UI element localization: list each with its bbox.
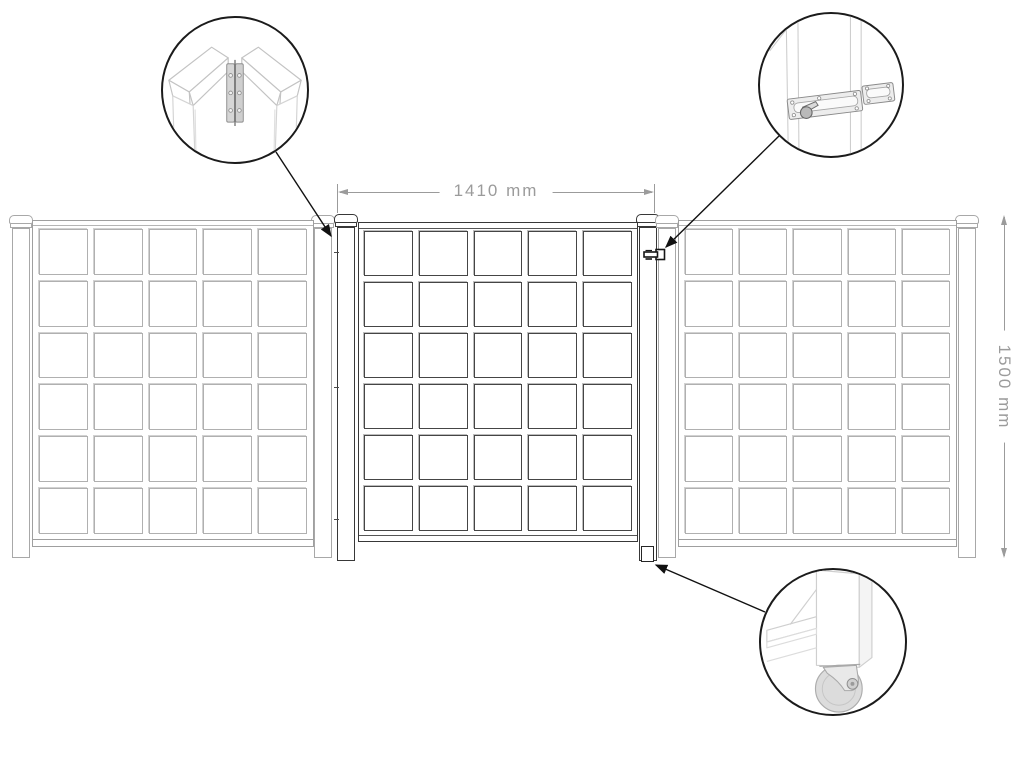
grid-opening: [902, 436, 950, 482]
grid-opening: [685, 384, 733, 430]
grid-opening: [793, 384, 841, 430]
grid-opening: [419, 435, 468, 480]
grid-opening: [474, 384, 523, 429]
caster-detail-callout: [759, 568, 907, 716]
grid-opening: [739, 229, 787, 275]
grid-opening: [474, 333, 523, 378]
grid-opening: [583, 435, 632, 480]
grid-opening: [258, 281, 307, 327]
grid-opening: [848, 333, 896, 379]
gate-panel: [358, 222, 638, 542]
grid-opening: [203, 229, 252, 275]
assembly-diagram: 1410 mm 1500 mm: [0, 0, 1024, 768]
grid-opening: [419, 282, 468, 327]
grid-opening: [583, 231, 632, 276]
grid-opening: [474, 282, 523, 327]
grid-opening: [149, 436, 198, 482]
grid-opening: [739, 488, 787, 534]
grid-opening: [364, 486, 413, 531]
grid-opening: [583, 486, 632, 531]
grid-opening: [419, 333, 468, 378]
grid-opening: [39, 436, 88, 482]
hinge-icon: [163, 18, 307, 162]
grid-opening: [94, 384, 143, 430]
grid-opening: [848, 384, 896, 430]
grid-opening: [39, 384, 88, 430]
grid-opening: [902, 333, 950, 379]
grid-opening: [203, 333, 252, 379]
grid-opening: [685, 333, 733, 379]
post-shaft: [658, 228, 676, 558]
right-fence-grid: [685, 229, 950, 534]
grid-opening: [739, 436, 787, 482]
grid-opening: [39, 488, 88, 534]
grid-opening: [149, 281, 198, 327]
caster-mount-stub: [641, 546, 654, 562]
grid-opening: [149, 384, 198, 430]
dimension-arrow-down: [1001, 548, 1007, 558]
post-shaft: [314, 228, 332, 558]
grid-opening: [419, 486, 468, 531]
fence-post-left-outer: [9, 215, 33, 558]
grid-opening: [848, 229, 896, 275]
grid-opening: [474, 231, 523, 276]
left-fence-panel: [32, 220, 314, 547]
grid-opening: [848, 436, 896, 482]
grid-opening: [902, 229, 950, 275]
post-cap: [311, 215, 335, 224]
hinge-detail-callout: [161, 16, 309, 164]
grid-opening: [528, 231, 577, 276]
grid-opening: [364, 231, 413, 276]
grid-opening: [528, 333, 577, 378]
right-fence-panel: [678, 220, 957, 547]
grid-opening: [902, 488, 950, 534]
grid-opening: [364, 282, 413, 327]
grid-opening: [528, 486, 577, 531]
grid-opening: [419, 384, 468, 429]
grid-opening: [583, 384, 632, 429]
grid-opening: [149, 229, 198, 275]
grid-opening: [685, 488, 733, 534]
hinge-position-mark: [334, 519, 339, 520]
height-dimension-label: 1500 mm: [994, 330, 1014, 443]
grid-opening: [685, 436, 733, 482]
post-cap: [955, 215, 979, 224]
grid-opening: [258, 333, 307, 379]
fence-post-left-inner: [311, 215, 335, 558]
grid-opening: [94, 488, 143, 534]
grid-opening: [793, 281, 841, 327]
grid-opening: [258, 436, 307, 482]
hinge-position-mark: [334, 387, 339, 388]
latch-detail-callout: [758, 12, 904, 158]
grid-opening: [39, 281, 88, 327]
dimension-arrow-right: [644, 189, 654, 195]
grid-opening: [94, 281, 143, 327]
grid-opening: [258, 229, 307, 275]
grid-opening: [364, 333, 413, 378]
barrel-bolt-icon: [643, 246, 666, 268]
grid-opening: [203, 436, 252, 482]
grid-opening: [474, 435, 523, 480]
grid-opening: [739, 384, 787, 430]
post-shaft: [337, 227, 355, 561]
grid-opening: [149, 488, 198, 534]
left-fence-grid: [39, 229, 307, 534]
extension-line: [654, 184, 655, 213]
dimension-arrow-up: [1001, 215, 1007, 225]
caster-wheel-icon: [761, 570, 905, 714]
grid-opening: [39, 229, 88, 275]
grid-opening: [94, 333, 143, 379]
grid-opening: [258, 384, 307, 430]
grid-opening: [902, 384, 950, 430]
grid-opening: [258, 488, 307, 534]
grid-opening: [793, 488, 841, 534]
post-cap: [655, 215, 679, 224]
grid-opening: [583, 282, 632, 327]
post-cap: [9, 215, 33, 224]
grid-opening: [685, 229, 733, 275]
gate-grid: [364, 231, 632, 531]
grid-opening: [364, 384, 413, 429]
hinge-position-mark: [334, 252, 339, 253]
grid-opening: [528, 282, 577, 327]
grid-opening: [528, 435, 577, 480]
grid-opening: [203, 488, 252, 534]
barrel-bolt-icon: [760, 14, 902, 156]
height-dimension: 1500 mm: [990, 215, 1020, 558]
grid-opening: [583, 333, 632, 378]
grid-opening: [149, 333, 198, 379]
grid-opening: [364, 435, 413, 480]
grid-opening: [793, 333, 841, 379]
grid-opening: [94, 436, 143, 482]
fence-post-right-outer: [955, 215, 979, 558]
grid-opening: [685, 281, 733, 327]
grid-opening: [739, 281, 787, 327]
grid-opening: [203, 384, 252, 430]
width-dimension-label: 1410 mm: [440, 181, 553, 201]
post-shaft: [958, 228, 976, 558]
grid-opening: [528, 384, 577, 429]
grid-opening: [739, 333, 787, 379]
grid-opening: [848, 488, 896, 534]
width-dimension: 1410 mm: [337, 184, 655, 214]
grid-opening: [94, 229, 143, 275]
caster-leader-line: [656, 565, 765, 612]
grid-opening: [39, 333, 88, 379]
grid-opening: [902, 281, 950, 327]
grid-opening: [793, 229, 841, 275]
grid-opening: [474, 486, 523, 531]
dimension-arrow-left: [338, 189, 348, 195]
grid-opening: [848, 281, 896, 327]
post-shaft: [12, 228, 30, 558]
grid-opening: [203, 281, 252, 327]
grid-opening: [419, 231, 468, 276]
grid-opening: [793, 436, 841, 482]
post-cap: [334, 214, 358, 223]
